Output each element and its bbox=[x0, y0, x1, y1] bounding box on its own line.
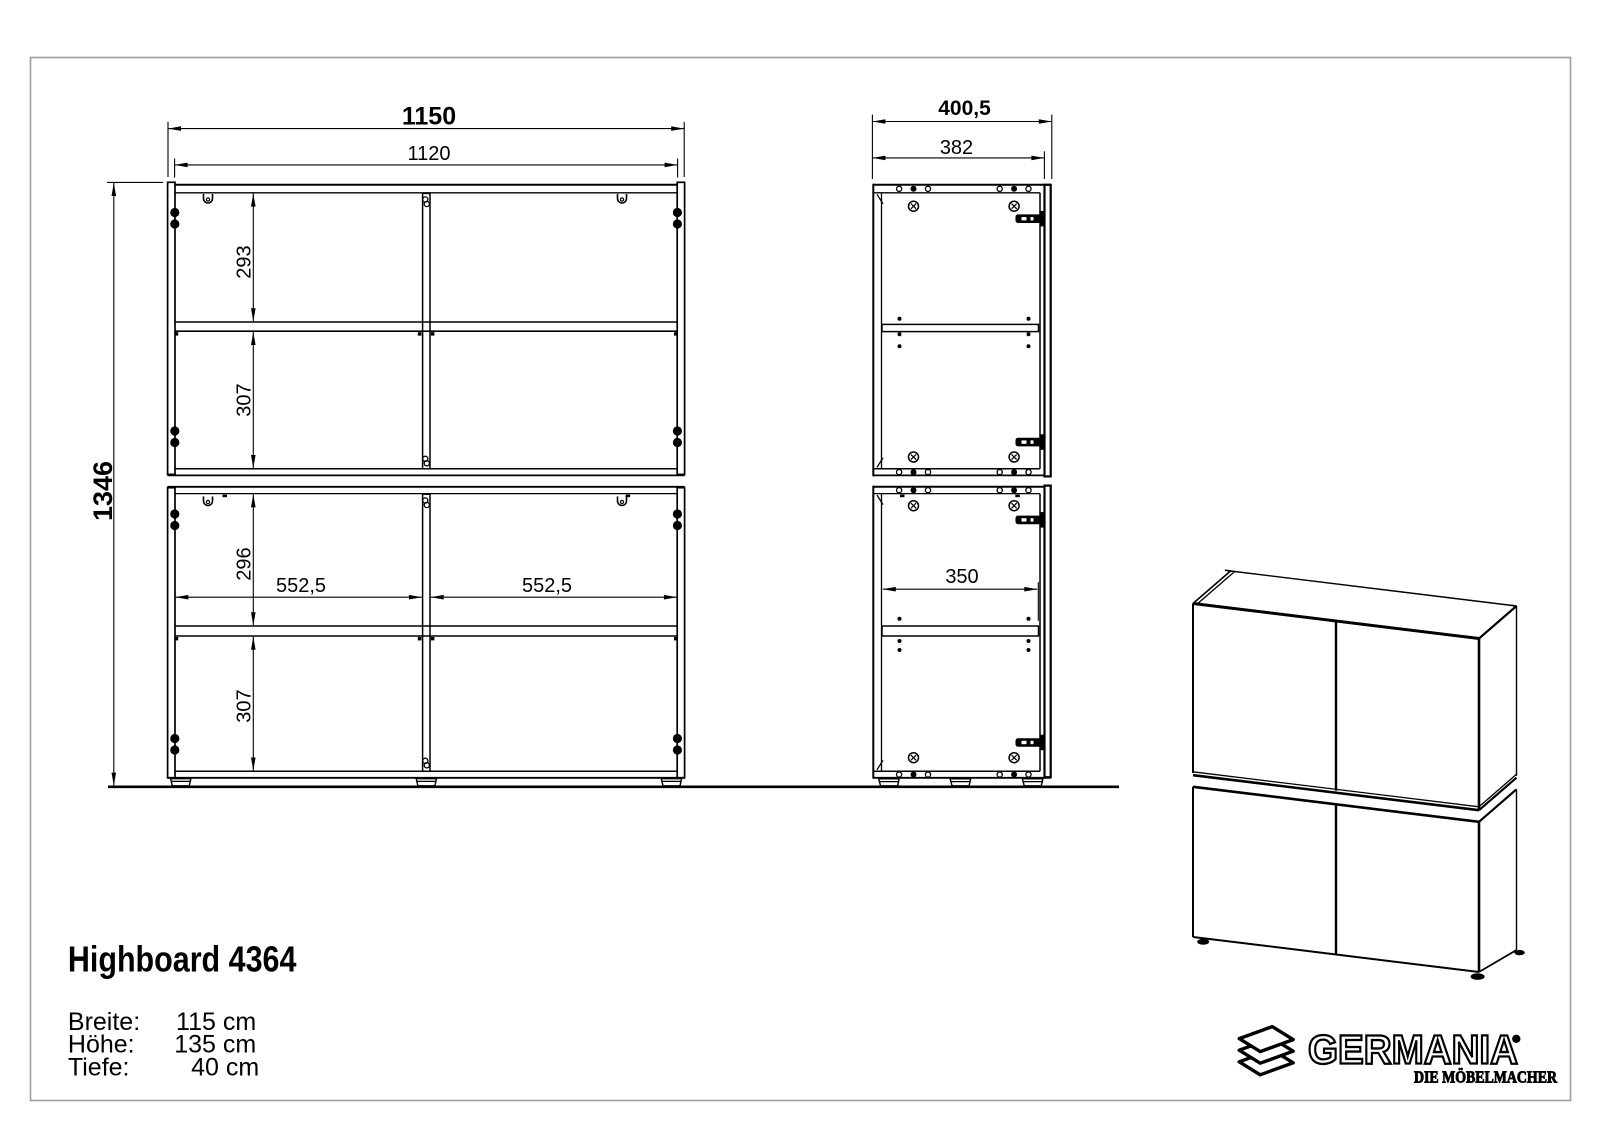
svg-text:40 cm: 40 cm bbox=[191, 1053, 259, 1081]
svg-text:350: 350 bbox=[945, 566, 978, 588]
svg-text:552,5: 552,5 bbox=[276, 575, 326, 597]
svg-text:1120: 1120 bbox=[407, 143, 450, 165]
svg-text:382: 382 bbox=[940, 137, 973, 159]
svg-text:DIE MÖBELMACHER: DIE MÖBELMACHER bbox=[1414, 1068, 1558, 1087]
svg-text:Tiefe:: Tiefe: bbox=[68, 1053, 130, 1081]
svg-text:400,5: 400,5 bbox=[938, 97, 991, 120]
svg-text:1150: 1150 bbox=[402, 103, 456, 131]
svg-text:293: 293 bbox=[234, 245, 256, 278]
svg-text:307: 307 bbox=[234, 383, 256, 416]
svg-text:307: 307 bbox=[234, 689, 256, 722]
svg-text:Highboard 4364: Highboard 4364 bbox=[68, 938, 297, 979]
svg-text:296: 296 bbox=[234, 547, 256, 580]
svg-text:GERMANIA: GERMANIA bbox=[1308, 1027, 1518, 1073]
svg-text:552,5: 552,5 bbox=[522, 575, 572, 597]
